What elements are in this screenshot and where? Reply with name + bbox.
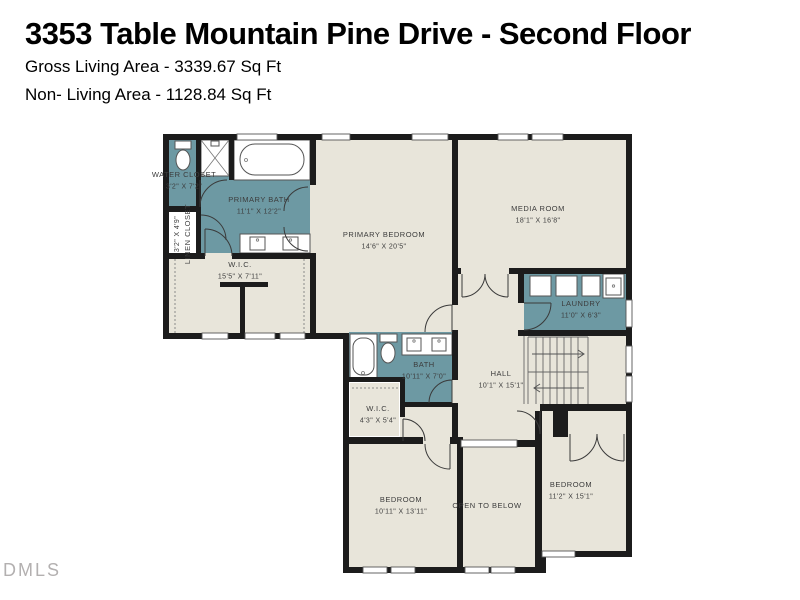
room-name-text: HALL — [491, 369, 512, 378]
vanity-sink-2-icon — [402, 334, 452, 355]
room-dims-text: 11'1" X 12'2" — [237, 209, 281, 216]
room-dims-text: 10'11" X 7'0" — [402, 374, 446, 381]
room-dims-text: 11'0" X 6'3" — [561, 313, 601, 320]
room-name-text: LINEN CLOSET — [183, 204, 192, 264]
room-name-text: W.I.C. — [228, 260, 251, 269]
room-label-open-to-below: OPEN TO BELOW — [452, 501, 522, 510]
room-name-text: BEDROOM — [550, 480, 592, 489]
floor-plan-page: 3353 Table Mountain Pine Drive - Second … — [0, 0, 800, 600]
toilet-icon — [175, 141, 191, 170]
room-dims-text: 4'3" X 5'4" — [360, 418, 396, 425]
room-name-text: W.I.C. — [366, 404, 389, 413]
room-name-text: LAUNDRY — [561, 299, 600, 308]
room-dims-text: 18'1" X 16'8" — [516, 218, 561, 225]
room-dims-text: 10'11" X 13'11" — [375, 509, 427, 516]
room-dims-text: 14'6" X 20'5" — [362, 244, 407, 251]
utility-sink-icon — [603, 274, 624, 298]
room-name-text: PRIMARY BATH — [228, 195, 289, 204]
room-name-text: MEDIA ROOM — [511, 204, 565, 213]
room-name-text: OPEN TO BELOW — [452, 501, 522, 510]
bathtub-icon — [240, 144, 304, 175]
room-name-text: BATH — [413, 360, 434, 369]
room-name-text: PRIMARY BEDROOM — [343, 230, 425, 239]
washer-icon — [530, 276, 551, 296]
floor-plan-drawing: WATER CLOSET3'2" X 7'2"LINEN CLOSET3'2" … — [0, 0, 800, 600]
bathtub-2-icon — [350, 334, 377, 378]
room-name-text: BEDROOM — [380, 495, 422, 504]
room-dims-text: 3'2" X 4'9" — [174, 216, 181, 252]
room-dims-text: 10'1" X 15'1" — [479, 383, 524, 390]
laundry-cabinet-icon — [582, 276, 600, 296]
dryer-icon — [556, 276, 577, 296]
room-dims-text: 11'2" X 15'1" — [549, 494, 593, 501]
room-name-text: WATER CLOSET — [152, 170, 216, 179]
vanity-sink-icon — [240, 234, 310, 253]
room-dims-text: 3'2" X 7'2" — [166, 184, 202, 191]
room-dims-text: 15'5" X 7'11" — [218, 274, 262, 281]
